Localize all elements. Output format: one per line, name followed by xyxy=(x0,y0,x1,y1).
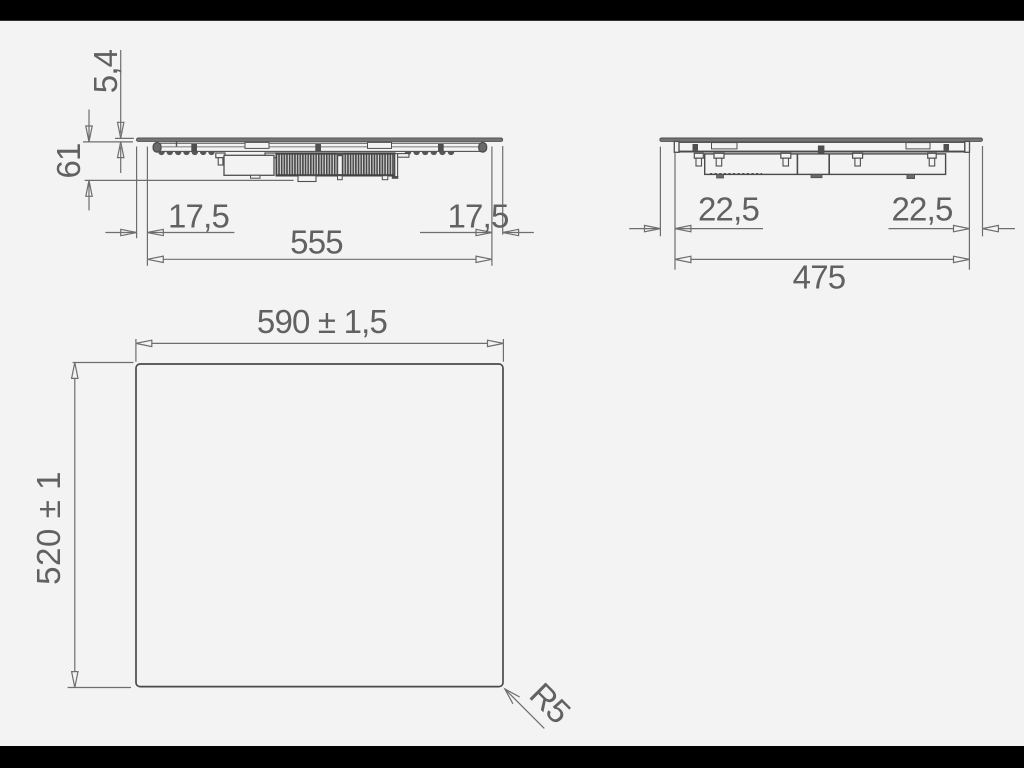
svg-text:17,5: 17,5 xyxy=(447,197,508,234)
svg-text:17,5: 17,5 xyxy=(168,197,229,234)
svg-text:520 ± 1: 520 ± 1 xyxy=(30,471,67,585)
svg-text:5,4: 5,4 xyxy=(87,49,124,93)
svg-text:555: 555 xyxy=(290,224,343,261)
svg-text:22,5: 22,5 xyxy=(891,191,952,228)
svg-text:22,5: 22,5 xyxy=(698,191,759,228)
svg-text:590 ± 1,5: 590 ± 1,5 xyxy=(257,303,387,340)
svg-text:61: 61 xyxy=(50,143,87,178)
svg-text:475: 475 xyxy=(793,259,846,296)
